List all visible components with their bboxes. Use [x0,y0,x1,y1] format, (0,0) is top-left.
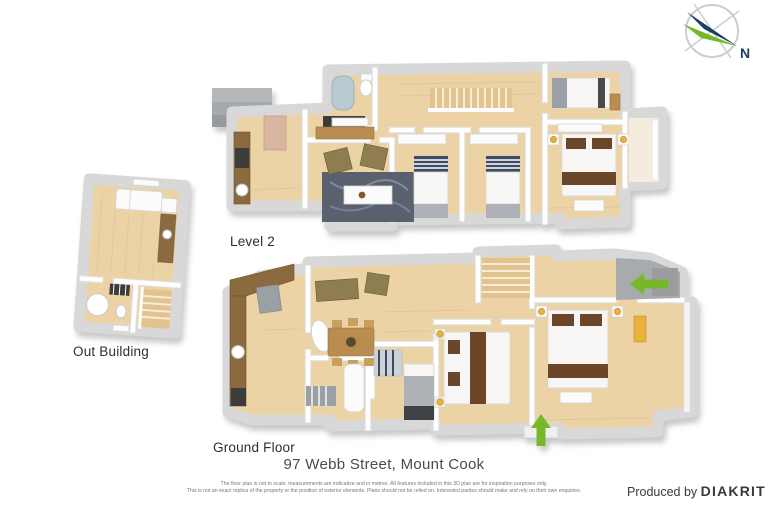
shelf [470,134,518,144]
bench [634,316,646,342]
out-building-label: Out Building [73,344,149,359]
cooktop [235,148,249,168]
level2-floorplan [212,66,662,226]
floorplan-canvas: N [0,0,768,512]
lamp [620,136,626,142]
level2-label: Level 2 [230,234,275,249]
vanity [332,118,368,126]
floorplan-page: N [0,0,768,512]
window [133,179,159,187]
credit-prefix: Produced by [627,485,697,499]
level2-balcony [629,118,659,182]
daybed [115,189,162,212]
lamp [437,331,444,338]
lamp [550,136,556,142]
ground-floor-floorplan [228,250,692,446]
out-building-stairs [138,287,172,331]
dresser [558,124,602,132]
ground-dining [328,318,374,368]
armchair [360,144,388,171]
sink [162,230,172,240]
pantry [264,116,286,150]
cooktop [231,388,246,406]
lamp [614,308,620,314]
address-title: 97 Webb Street, Mount Cook [0,456,768,473]
producer-credit: Produced by DIAKRIT [627,483,766,499]
shower [332,76,354,110]
diakrit-brand: DIAKRIT [701,483,766,499]
ground-floor-label: Ground Floor [213,440,295,455]
bathtub [344,364,364,412]
fridge [256,285,281,314]
compass: N [683,4,750,61]
desk [610,94,620,110]
level2-stairs [428,88,514,112]
ottoman [574,200,604,211]
kitchen-sink [232,346,245,359]
door-step [113,325,129,332]
out-building-floorplan [79,176,185,335]
stair-railing [428,108,514,112]
toilet [116,305,127,319]
lamp [437,399,444,406]
level2-bedroom-4 [552,78,620,110]
balcony-railing [652,120,658,180]
shelf [398,134,446,144]
compass-north-label: N [740,45,750,61]
sofa [315,279,358,302]
lamp [538,308,544,314]
coffee-table [344,186,392,204]
ottoman [560,392,592,403]
kitchen-sink [236,184,248,196]
armchair [365,272,390,295]
radiator-rack [306,386,336,406]
side-railing [684,302,690,412]
ground-bedroom-2 [435,329,510,407]
ground-stairs [482,258,530,298]
media-desk [316,127,374,139]
cabinet [161,198,177,213]
